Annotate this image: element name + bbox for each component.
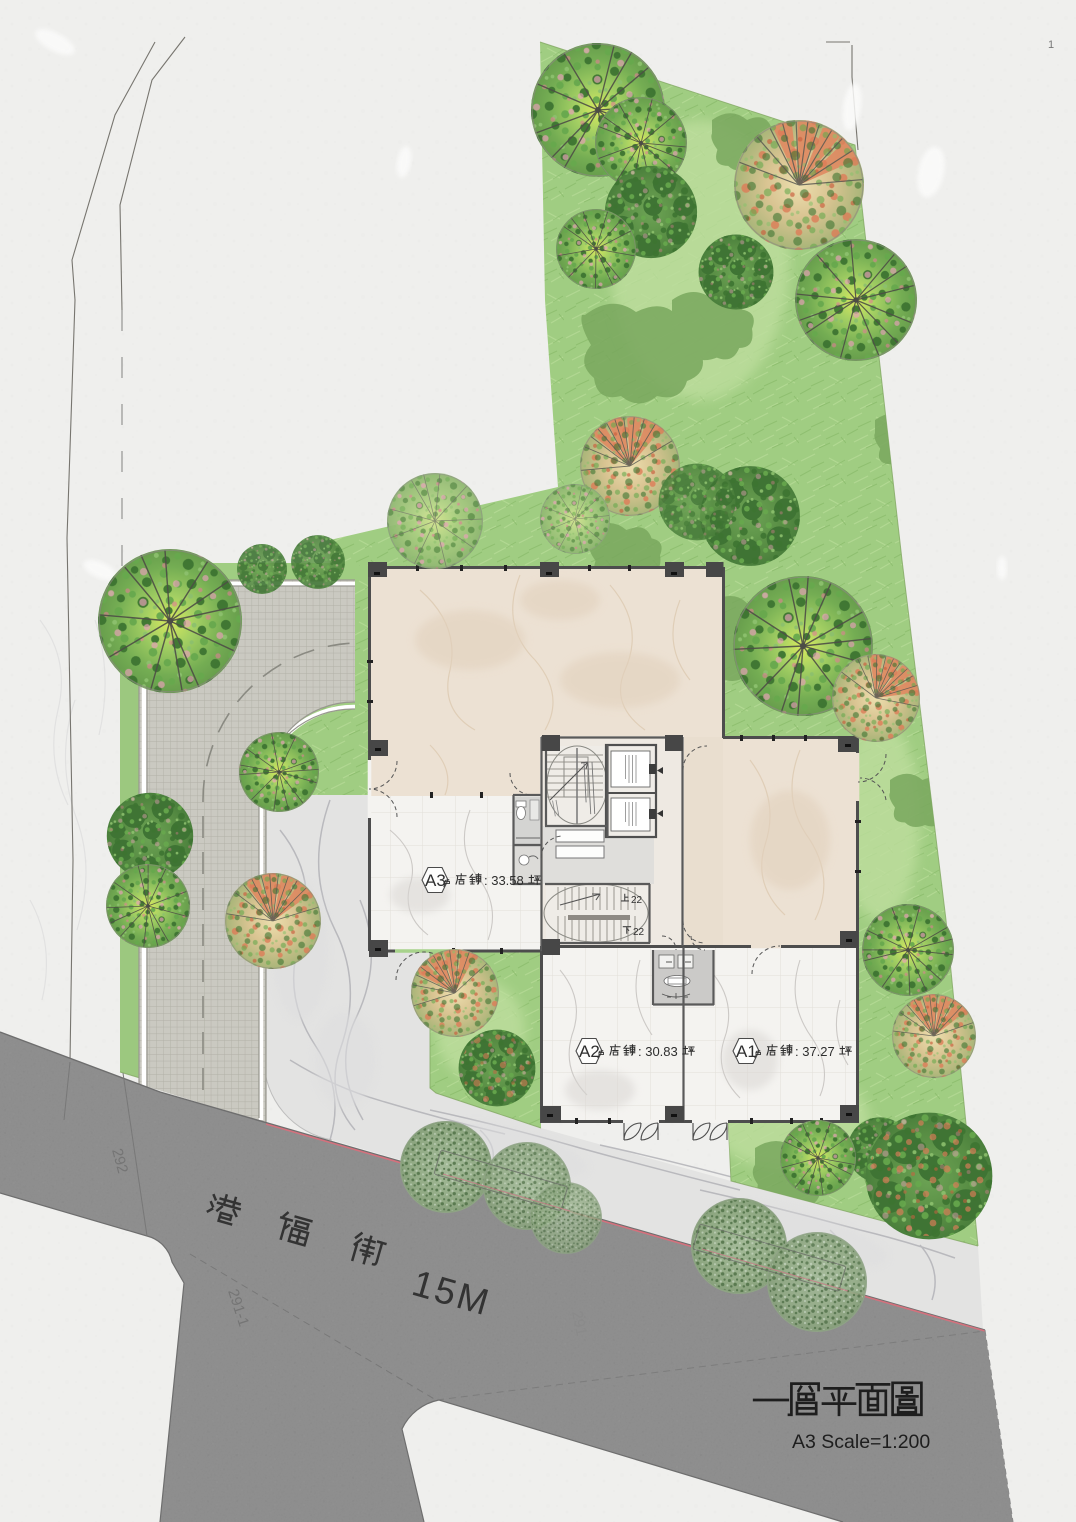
svg-text:22: 22 [631, 895, 643, 906]
svg-text:A3 Scale=1:200: A3 Scale=1:200 [792, 1431, 930, 1453]
svg-text:22: 22 [633, 927, 645, 938]
svg-text:: 37.27: : 37.27 [795, 1044, 835, 1059]
svg-text:A3: A3 [425, 871, 446, 890]
svg-text:1: 1 [1048, 39, 1054, 51]
svg-text:: 30.83: : 30.83 [638, 1044, 678, 1059]
svg-text:A1: A1 [736, 1042, 757, 1061]
svg-text:A2: A2 [579, 1042, 600, 1061]
svg-text:: 33.58: : 33.58 [484, 873, 524, 888]
